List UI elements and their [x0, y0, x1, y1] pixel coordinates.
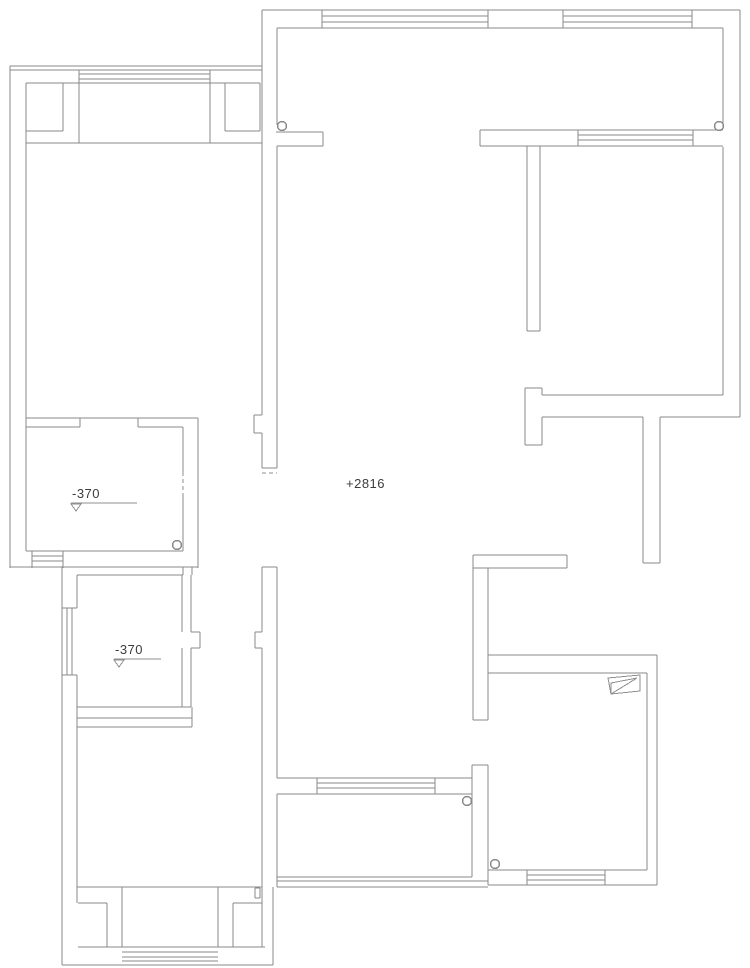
level-annotation: -370 — [72, 487, 100, 500]
height-annotation: +2816 — [346, 477, 385, 490]
floor-plan-page: -370 -370 +2816 — [0, 0, 750, 968]
level-triangle-icon — [71, 504, 81, 511]
hinge-circle-icon — [173, 541, 182, 550]
hinge-circle-icon — [278, 122, 287, 131]
hinge-circle-icon — [463, 797, 472, 806]
hinge-circle-icon — [491, 860, 500, 869]
level-triangle-icon — [114, 660, 124, 667]
hinge-circle-icon — [715, 122, 724, 131]
level-annotation: -370 — [115, 643, 143, 656]
